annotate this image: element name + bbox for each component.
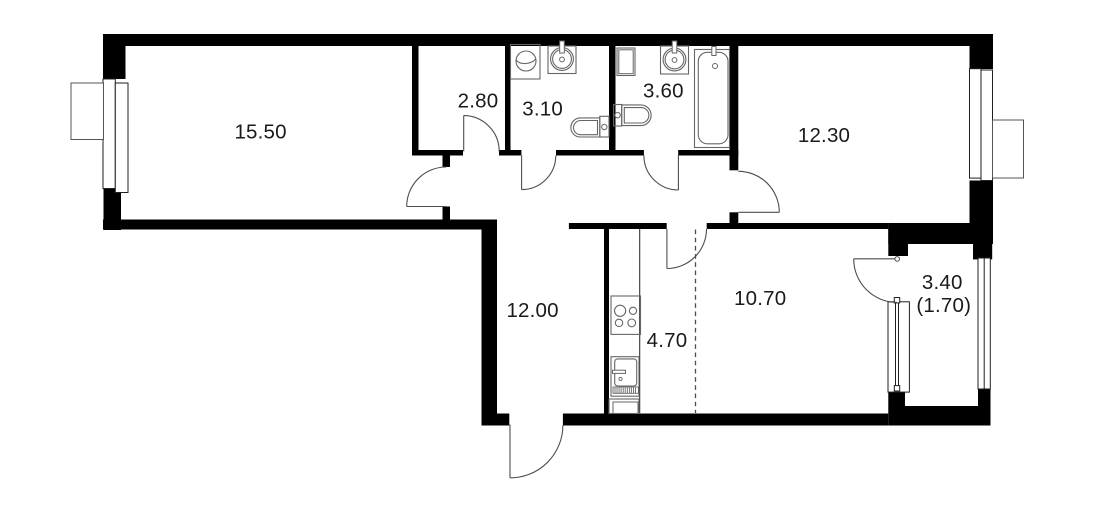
svg-text:4.70: 4.70 [647, 329, 688, 352]
svg-text:3.40: 3.40 [922, 271, 963, 294]
svg-text:2.80: 2.80 [458, 90, 499, 113]
svg-text:15.50: 15.50 [234, 120, 286, 143]
svg-text:(1.70): (1.70) [916, 294, 971, 317]
svg-text:3.60: 3.60 [643, 80, 684, 103]
svg-text:3.10: 3.10 [522, 98, 563, 121]
svg-text:12.30: 12.30 [798, 124, 850, 147]
svg-text:10.70: 10.70 [734, 287, 786, 310]
svg-text:12.00: 12.00 [506, 299, 558, 322]
